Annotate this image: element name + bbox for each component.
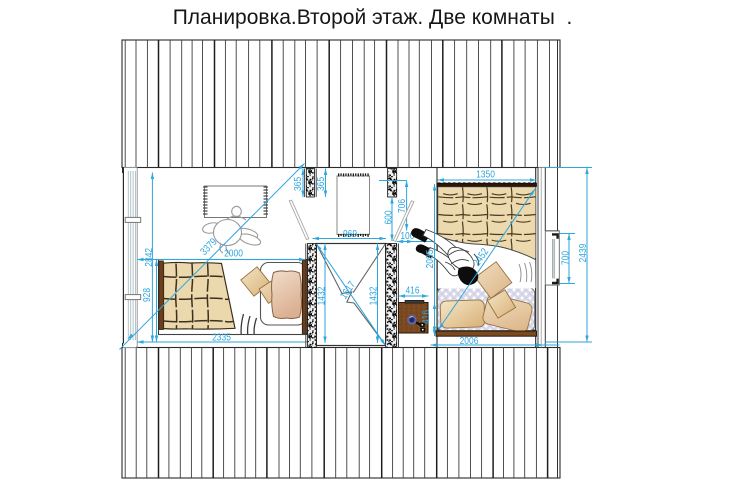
svg-text:416: 416 <box>405 285 419 297</box>
svg-text:1432: 1432 <box>316 286 328 305</box>
svg-text:416: 416 <box>420 310 432 324</box>
svg-text:700: 700 <box>560 251 572 265</box>
svg-text:1432: 1432 <box>368 286 380 305</box>
svg-text:365: 365 <box>292 177 304 191</box>
svg-text:2335: 2335 <box>212 331 231 343</box>
svg-text:706: 706 <box>396 199 408 213</box>
svg-text:2842: 2842 <box>143 248 155 267</box>
svg-text:600: 600 <box>383 210 395 224</box>
svg-text:1350: 1350 <box>476 168 495 180</box>
svg-text:2006: 2006 <box>460 335 479 347</box>
svg-text:2085: 2085 <box>424 249 436 268</box>
svg-text:928: 928 <box>141 288 153 302</box>
svg-text:2439: 2439 <box>577 243 589 262</box>
svg-text:365: 365 <box>315 177 327 191</box>
svg-text:Планировка.Второй этаж. Две ко: Планировка.Второй этаж. Две комнаты . <box>173 6 573 29</box>
svg-text:2000: 2000 <box>224 248 243 260</box>
